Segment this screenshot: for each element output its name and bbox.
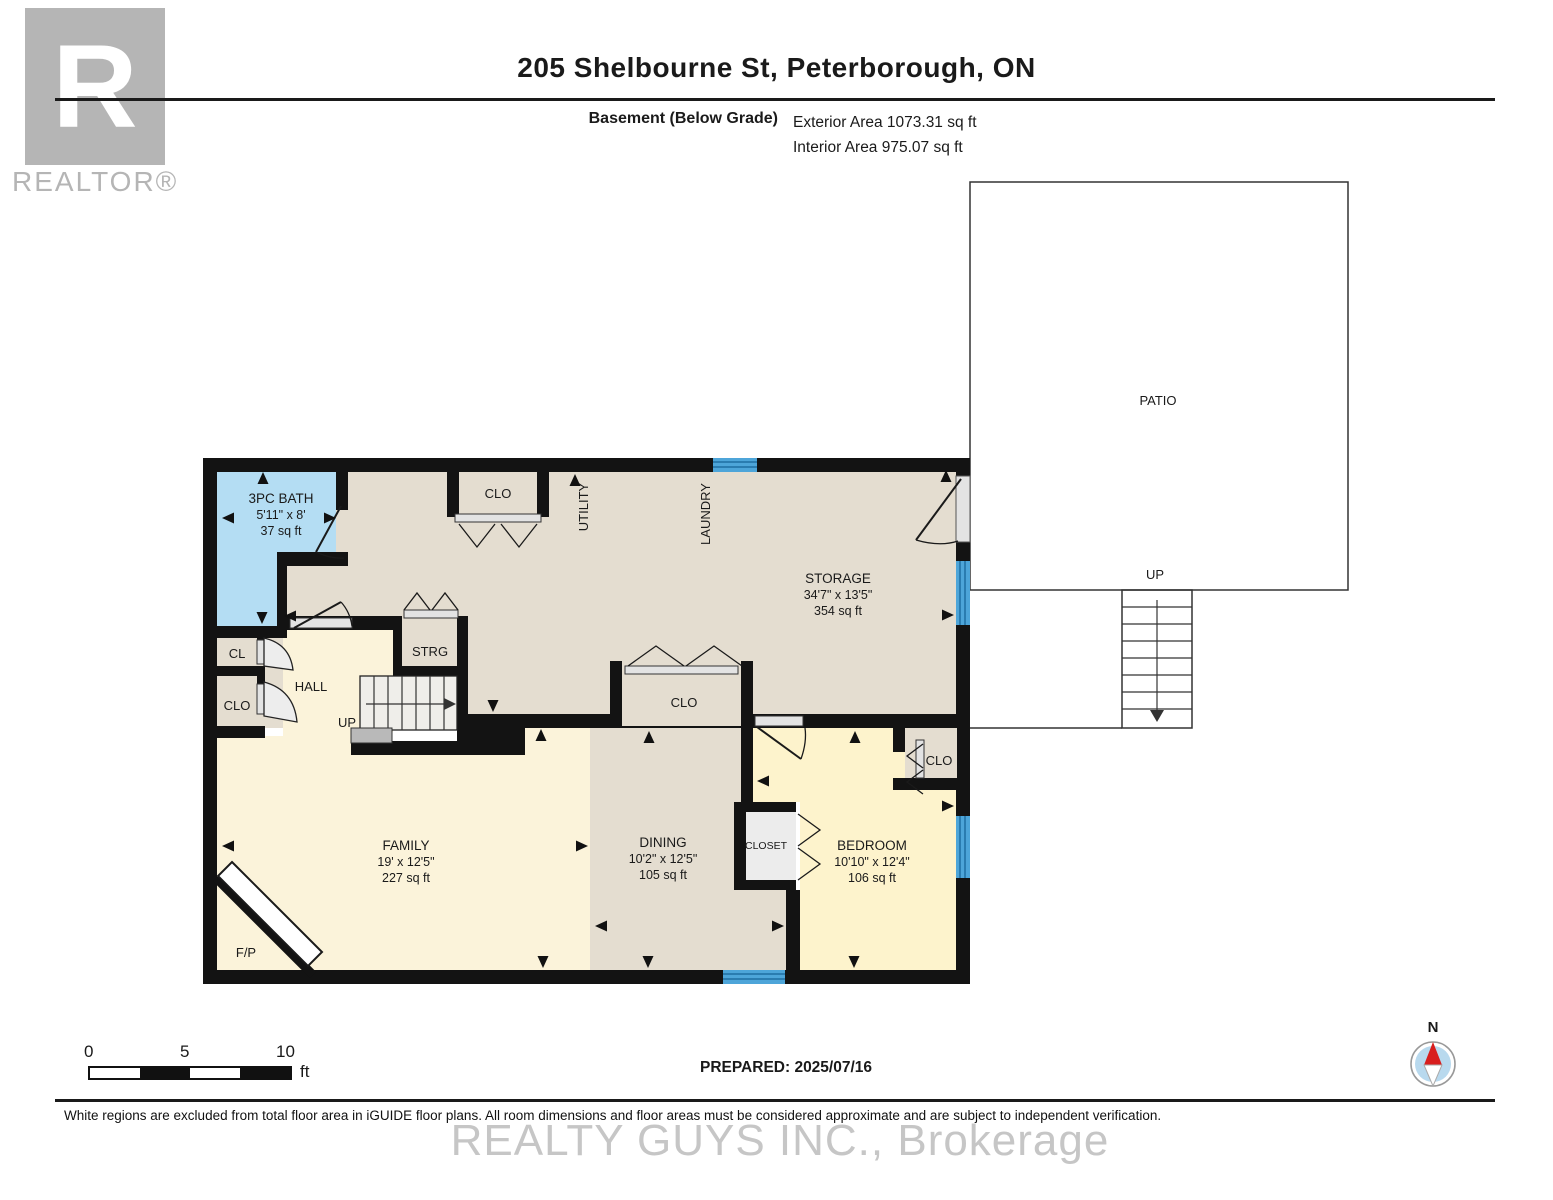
patio-up-label: UP: [1146, 567, 1164, 582]
svg-text:STORAGE: STORAGE: [805, 571, 871, 586]
closet-label: CLOSET: [745, 840, 788, 852]
laundry-label: LAUNDRY: [698, 483, 713, 545]
footer-divider: [55, 1099, 1495, 1102]
realtor-logo: R: [25, 8, 165, 165]
utility-label: UTILITY: [576, 482, 591, 531]
svg-text:10'2" x 12'5": 10'2" x 12'5": [629, 852, 698, 866]
svg-text:106 sq ft: 106 sq ft: [848, 871, 896, 885]
window: [956, 561, 970, 625]
room-family-label: FAMILY 19' x 12'5" 227 sq ft: [377, 838, 434, 885]
svg-text:5'11" x 8': 5'11" x 8': [256, 508, 305, 522]
fireplace-label: F/P: [236, 945, 256, 960]
svg-text:19' x 12'5": 19' x 12'5": [377, 855, 434, 869]
top-clo-label: CLO: [485, 486, 512, 501]
patio: PATIO UP: [970, 182, 1348, 590]
window: [956, 816, 970, 878]
hall-label: HALL: [295, 679, 328, 694]
window: [723, 970, 785, 984]
brokerage-watermark: REALTY GUYS INC., Brokerage: [400, 1116, 1160, 1166]
stair-landing: [351, 728, 392, 743]
left-clo-label: CLO: [224, 698, 251, 713]
svg-text:354 sq ft: 354 sq ft: [814, 604, 862, 618]
closet-door-sill: [625, 666, 738, 674]
bedroom-clo-label: CLO: [926, 753, 953, 768]
disclaimer-text: White regions are excluded from total fl…: [64, 1108, 1494, 1123]
stairs-down-arrow-icon: [1150, 710, 1164, 722]
svg-text:10'10" x 12'4": 10'10" x 12'4": [834, 855, 910, 869]
window: [713, 458, 757, 472]
patio-label: PATIO: [1139, 393, 1176, 408]
svg-text:34'7" x 13'5": 34'7" x 13'5": [804, 588, 873, 602]
title-divider: [55, 98, 1495, 101]
strg-label: STRG: [412, 644, 448, 659]
cl-label: CL: [229, 646, 246, 661]
exterior-staircase: [970, 590, 1192, 728]
svg-text:37 sq ft: 37 sq ft: [261, 524, 303, 538]
svg-text:FAMILY: FAMILY: [382, 838, 429, 853]
svg-text:BEDROOM: BEDROOM: [837, 838, 907, 853]
floor-plan-page: R REALTOR® 205 Shelbourne St, Peterborou…: [0, 0, 1553, 1200]
exterior-door: [956, 476, 970, 542]
floor-plan-drawing: PATIO UP: [0, 0, 1553, 1200]
dining-clo-label: CLO: [671, 695, 698, 710]
stairs-up-label: UP: [338, 715, 356, 730]
svg-text:DINING: DINING: [639, 835, 686, 850]
interior-staircase: [351, 676, 457, 743]
svg-text:105 sq ft: 105 sq ft: [639, 868, 687, 882]
realtor-logo-r: R: [52, 28, 137, 146]
svg-text:227 sq ft: 227 sq ft: [382, 871, 430, 885]
svg-text:3PC BATH: 3PC BATH: [248, 491, 313, 506]
